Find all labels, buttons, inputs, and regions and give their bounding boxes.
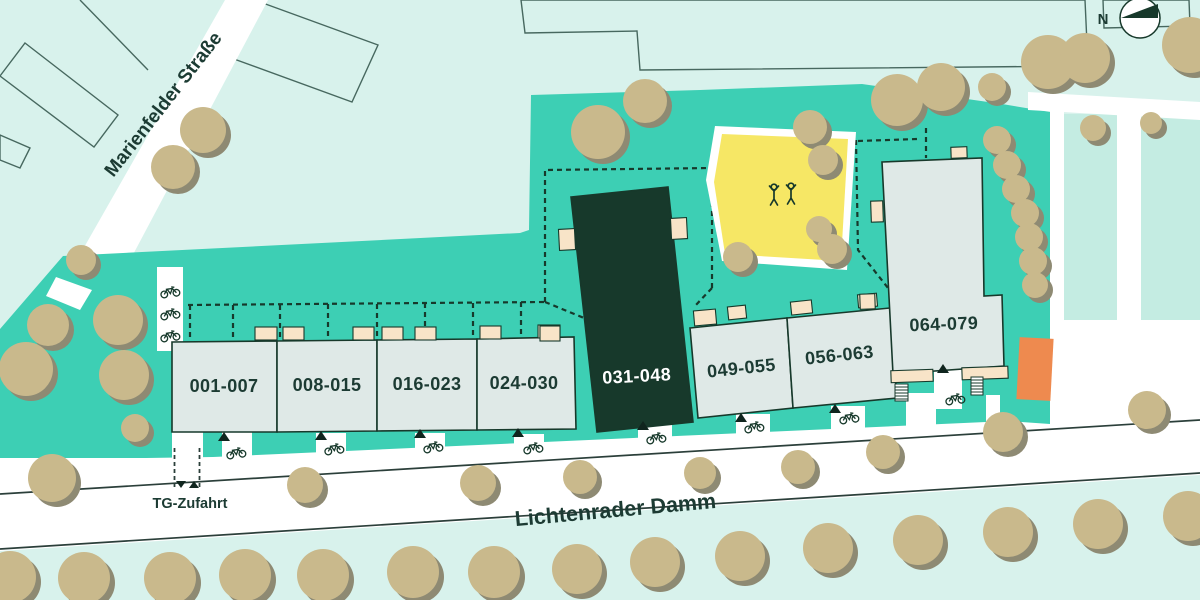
terrace bbox=[727, 305, 746, 320]
building-label: 031-048 bbox=[602, 364, 672, 388]
terrace bbox=[283, 327, 304, 340]
terrace bbox=[540, 326, 560, 341]
terrace bbox=[255, 327, 277, 340]
terrace bbox=[415, 327, 436, 340]
garage-entrance-label: TG-Zufahrt bbox=[153, 496, 228, 512]
terrace bbox=[951, 147, 967, 159]
path-east-vertical bbox=[1117, 112, 1141, 332]
building-label: 016-023 bbox=[393, 374, 462, 394]
terrace bbox=[860, 294, 876, 310]
building-024-030[interactable]: 024-030 bbox=[477, 337, 576, 430]
building-016-023[interactable]: 016-023 bbox=[377, 339, 477, 431]
north-label: N bbox=[1098, 11, 1109, 28]
terrace bbox=[871, 201, 884, 222]
building-label: 008-015 bbox=[293, 375, 362, 395]
building-049-055[interactable]: 049-055 bbox=[690, 318, 793, 418]
building-label: 024-030 bbox=[490, 373, 559, 393]
building-008-015[interactable]: 008-015 bbox=[277, 340, 377, 432]
building-label: 001-007 bbox=[190, 376, 259, 396]
terrace bbox=[382, 327, 403, 340]
stair-hatch bbox=[895, 384, 908, 401]
building-001-007[interactable]: 001-007 bbox=[172, 341, 277, 432]
orange-feature bbox=[1016, 337, 1053, 401]
terrace bbox=[670, 218, 687, 240]
terrace bbox=[962, 366, 1008, 380]
path-notch bbox=[906, 393, 936, 427]
stair-hatch bbox=[971, 377, 983, 395]
terrace bbox=[353, 327, 374, 340]
terrace bbox=[790, 300, 812, 315]
terrace bbox=[693, 309, 716, 326]
building-056-063[interactable]: 056-063 bbox=[787, 308, 897, 408]
path-east-edge bbox=[1050, 104, 1064, 430]
terrace bbox=[480, 326, 501, 339]
site-plan: 001-007 008-015 016-023 024-030 049-055 … bbox=[0, 0, 1200, 600]
building-label: 064-079 bbox=[909, 313, 979, 335]
terrace bbox=[558, 229, 575, 251]
terrace bbox=[891, 369, 933, 382]
